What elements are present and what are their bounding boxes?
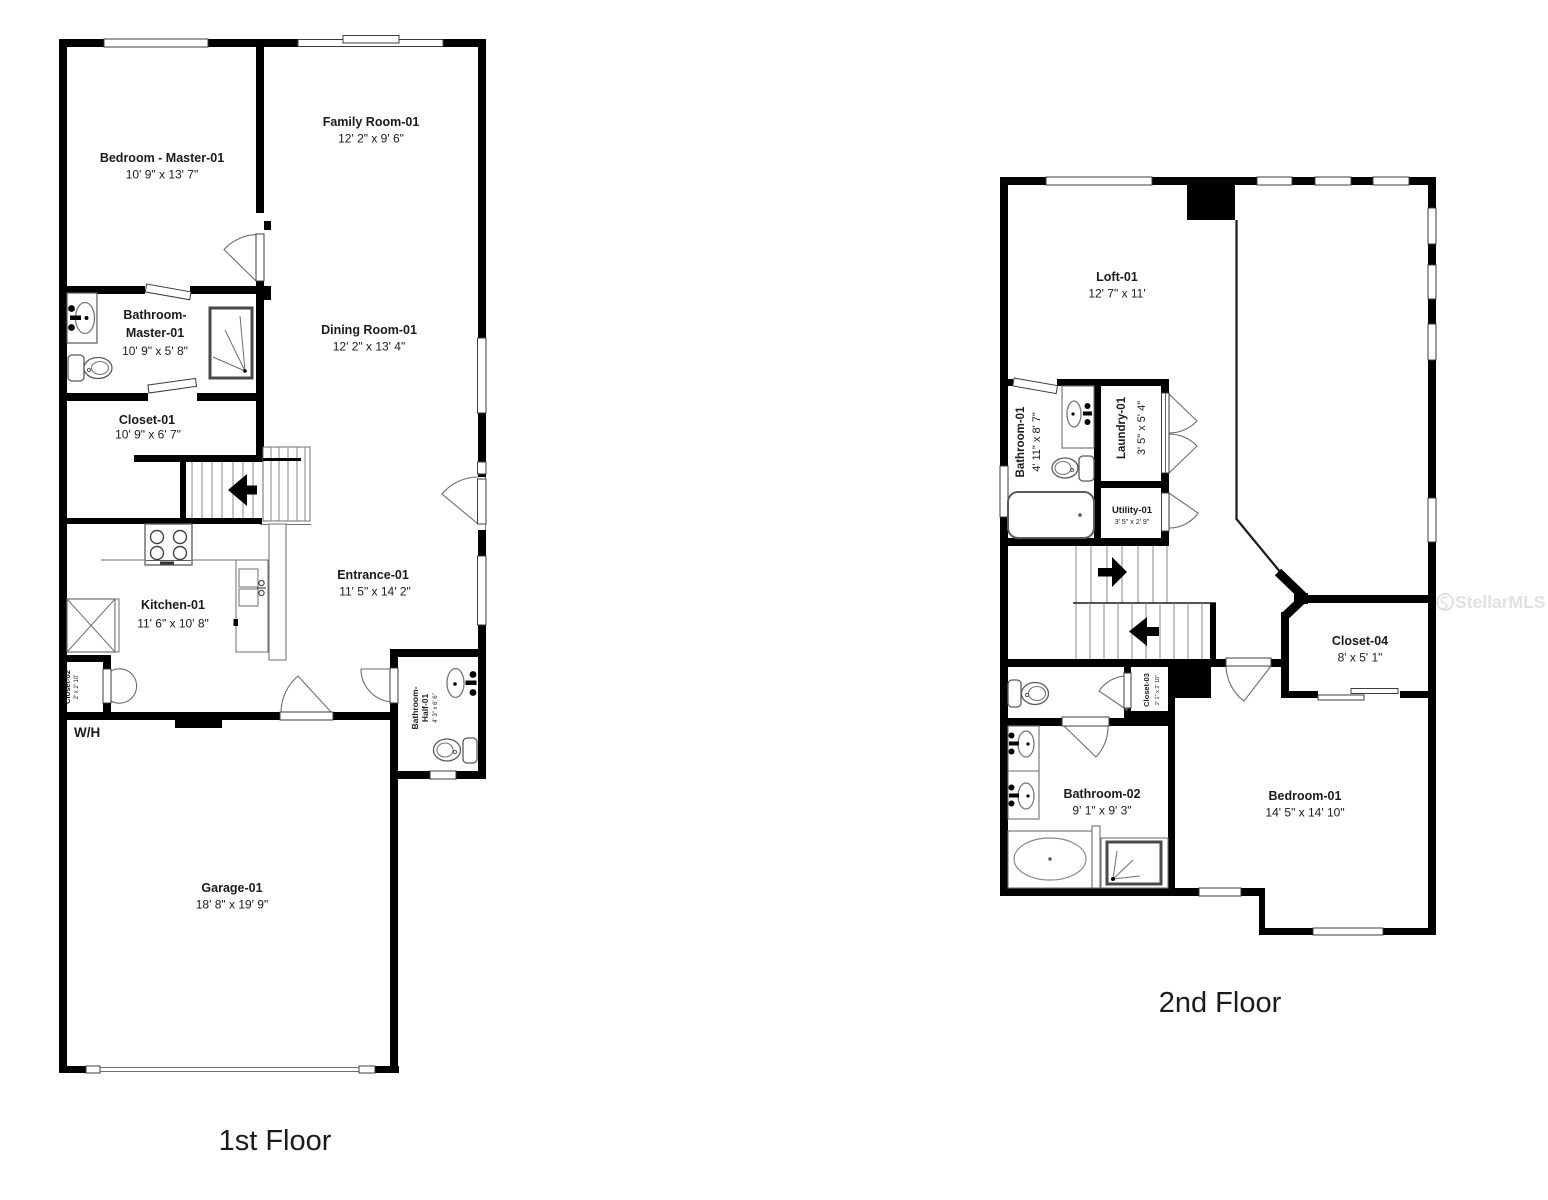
svg-text:Closet-01: Closet-01 — [119, 413, 175, 427]
svg-text:3' 5" x 5' 4": 3' 5" x 5' 4" — [1136, 401, 1148, 455]
svg-text:1st Floor: 1st Floor — [219, 1125, 332, 1157]
svg-text:4' 11" x 8' 7": 4' 11" x 8' 7" — [1031, 412, 1043, 472]
svg-text:2nd Floor: 2nd Floor — [1159, 987, 1282, 1019]
svg-text:Bedroom-01: Bedroom-01 — [1269, 789, 1342, 803]
svg-text:Closet-03: Closet-03 — [1142, 673, 1151, 707]
svg-text:Family Room-01: Family Room-01 — [323, 115, 420, 129]
svg-text:W/H: W/H — [74, 725, 100, 740]
svg-text:12' 7" x 11': 12' 7" x 11' — [1088, 287, 1145, 301]
svg-text:14' 5" x 14' 10": 14' 5" x 14' 10" — [1265, 806, 1344, 820]
svg-text:3' 5" x 2' 9": 3' 5" x 2' 9" — [1115, 519, 1150, 526]
svg-text:Half-01: Half-01 — [420, 694, 430, 723]
svg-text:Garage-01: Garage-01 — [201, 881, 262, 895]
svg-text:Kitchen-01: Kitchen-01 — [141, 598, 205, 612]
svg-text:Entrance-01: Entrance-01 — [337, 568, 409, 582]
svg-text:Bathroom-: Bathroom- — [410, 686, 420, 729]
svg-text:10' 9" x 6' 7": 10' 9" x 6' 7" — [115, 428, 181, 442]
svg-text:2' x 2' 10': 2' x 2' 10' — [74, 675, 80, 700]
svg-text:Closet-04: Closet-04 — [1332, 634, 1388, 648]
svg-text:4' 3" x 6' 6": 4' 3" x 6' 6" — [433, 693, 439, 723]
svg-text:11' 5" x 14' 2": 11' 5" x 14' 2" — [339, 585, 411, 599]
svg-text:12' 2" x 13' 4": 12' 2" x 13' 4" — [333, 340, 405, 354]
svg-text:11' 6" x 10' 8": 11' 6" x 10' 8" — [137, 617, 209, 631]
svg-text:Laundry-01: Laundry-01 — [1116, 396, 1128, 459]
svg-text:18' 8" x 19' 9": 18' 8" x 19' 9" — [196, 898, 268, 912]
svg-text:10' 9" x 5' 8": 10' 9" x 5' 8" — [122, 344, 188, 358]
svg-text:Utility-01: Utility-01 — [1112, 505, 1153, 516]
svg-text:Bedroom - Master-01: Bedroom - Master-01 — [100, 151, 224, 165]
svg-text:8' x 5' 1": 8' x 5' 1" — [1338, 651, 1383, 665]
svg-text:2' 1" x 2' 10": 2' 1" x 2' 10" — [1155, 675, 1161, 705]
svg-text:Loft-01: Loft-01 — [1096, 270, 1138, 284]
svg-text:StellarMLS: StellarMLS — [1455, 592, 1545, 612]
svg-text:Bathroom-02: Bathroom-02 — [1063, 787, 1140, 801]
svg-text:Bathroom-: Bathroom- — [123, 308, 186, 322]
svg-text:Bathroom-01: Bathroom-01 — [1015, 406, 1027, 478]
svg-text:10' 9" x 13' 7": 10' 9" x 13' 7" — [126, 168, 198, 182]
svg-text:Master-01: Master-01 — [126, 326, 184, 340]
svg-text:9' 1" x 9' 3": 9' 1" x 9' 3" — [1072, 804, 1131, 818]
svg-text:Dining Room-01: Dining Room-01 — [321, 323, 417, 337]
svg-text:Closet-02: Closet-02 — [63, 670, 72, 704]
svg-text:12' 2" x 9' 6": 12' 2" x 9' 6" — [338, 132, 404, 146]
